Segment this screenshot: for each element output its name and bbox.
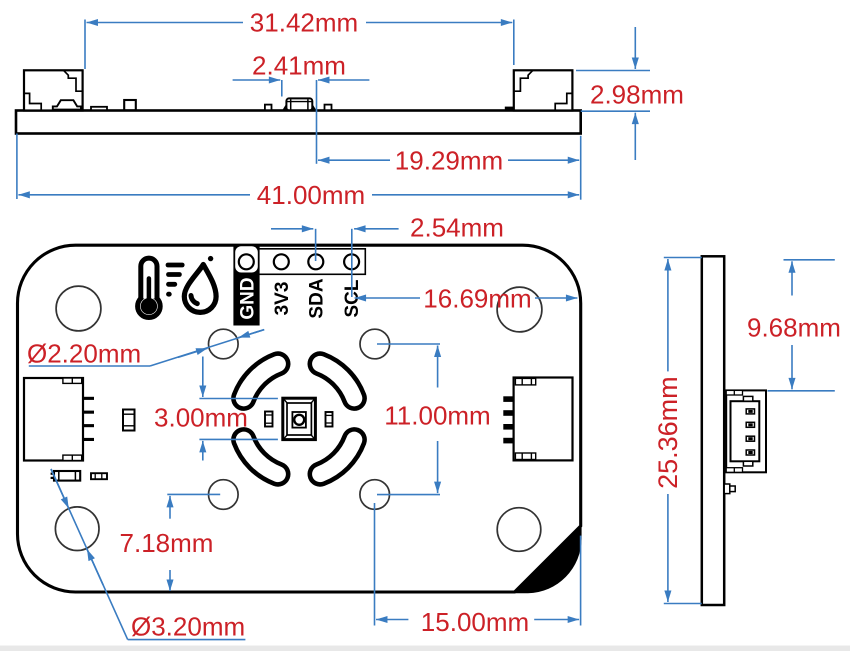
- svg-text:Ø2.20mm: Ø2.20mm: [27, 339, 141, 369]
- svg-text:11.00mm: 11.00mm: [384, 401, 490, 431]
- svg-text:Ø3.20mm: Ø3.20mm: [131, 612, 245, 642]
- svg-text:3V3: 3V3: [272, 282, 293, 316]
- svg-text:19.29mm: 19.29mm: [395, 146, 503, 176]
- svg-text:41.00mm: 41.00mm: [257, 180, 365, 210]
- svg-text:16.69mm: 16.69mm: [423, 284, 531, 314]
- svg-text:GND: GND: [237, 277, 258, 319]
- svg-text:7.18mm: 7.18mm: [120, 528, 214, 558]
- svg-text:25.36mm: 25.36mm: [653, 376, 683, 489]
- svg-text:2.54mm: 2.54mm: [410, 213, 504, 243]
- svg-text:2.41mm: 2.41mm: [252, 51, 346, 81]
- svg-text:3.00mm: 3.00mm: [154, 403, 248, 433]
- svg-text:9.68mm: 9.68mm: [747, 313, 841, 343]
- svg-text:31.42mm: 31.42mm: [250, 8, 358, 38]
- svg-text:2.98mm: 2.98mm: [590, 80, 684, 110]
- svg-text:15.00mm: 15.00mm: [421, 607, 529, 637]
- svg-text:SDA: SDA: [307, 278, 328, 318]
